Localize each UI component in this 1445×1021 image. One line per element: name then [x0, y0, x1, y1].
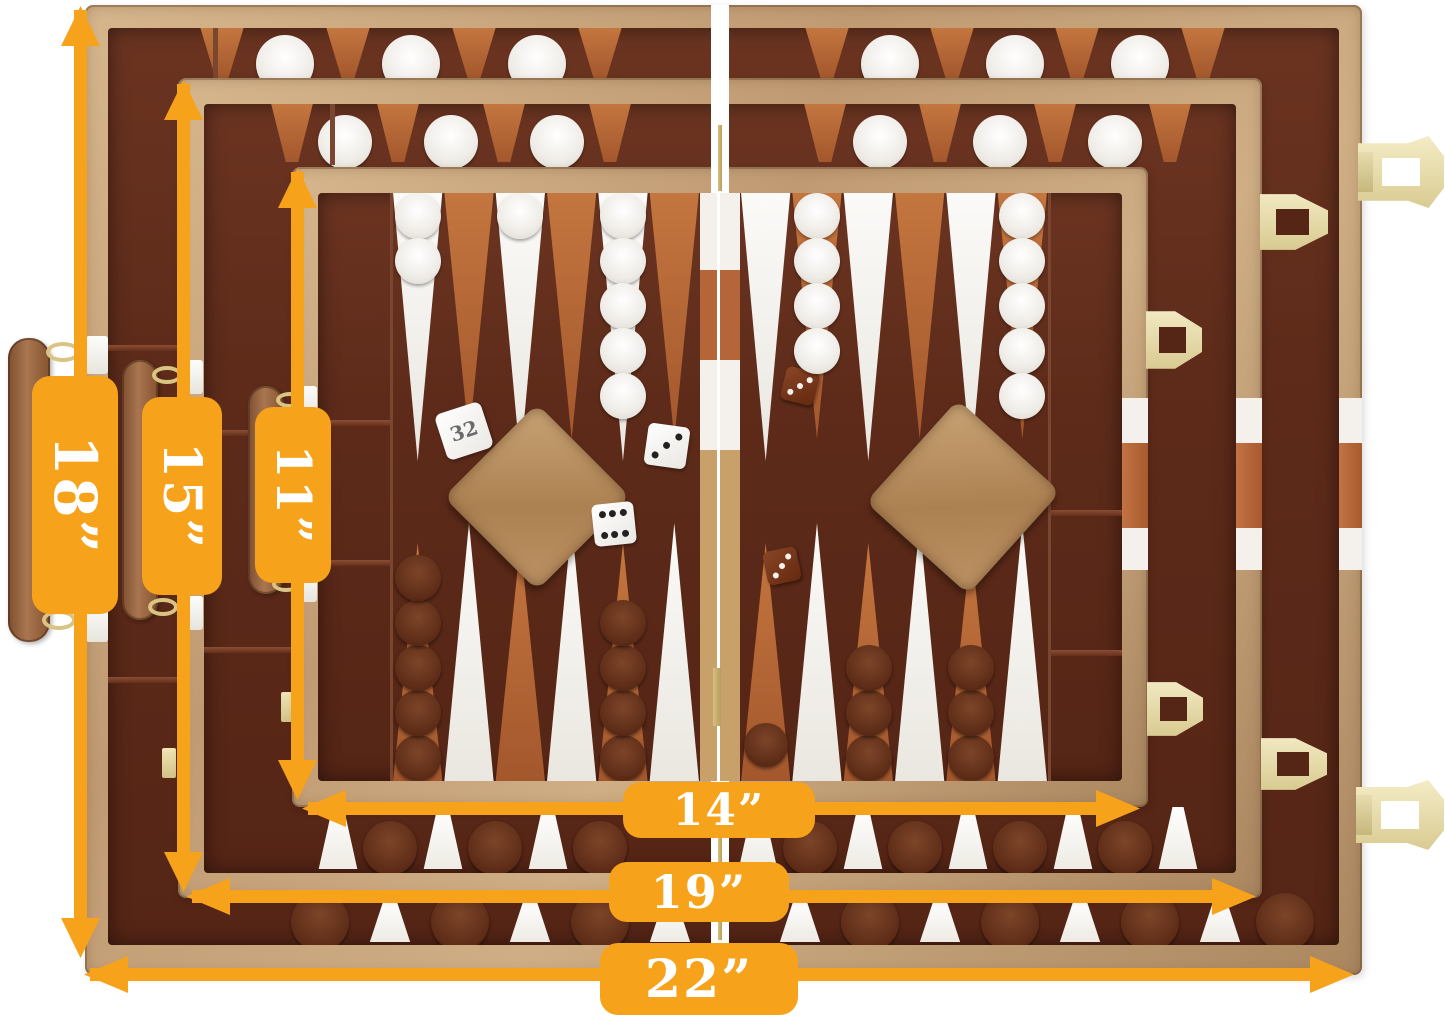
checker-white	[600, 238, 646, 284]
point-stub	[1050, 807, 1096, 869]
point-stub	[1050, 28, 1104, 78]
board-point	[443, 523, 494, 781]
strap-tab	[86, 336, 108, 374]
dimension-label-15-inch: 15”	[142, 397, 222, 595]
gold-latch-icon	[1261, 737, 1327, 791]
checker-brown	[395, 600, 441, 646]
point-stub	[266, 104, 318, 162]
dimension-label-18-inch: 18”	[32, 376, 118, 614]
tray-divider	[213, 28, 218, 78]
leather-strap	[1236, 443, 1262, 528]
checker-white	[794, 193, 840, 239]
board-point	[894, 193, 945, 439]
point-stub	[1144, 104, 1196, 162]
point-stub	[366, 898, 414, 942]
checker-white	[395, 193, 441, 239]
checker-white	[600, 193, 646, 239]
product-photo-nested-backgammon-cases: 32	[0, 0, 1445, 1021]
tray-shelf	[108, 345, 178, 351]
dimension-text: 22”	[645, 949, 753, 1010]
checker-white	[999, 238, 1045, 284]
point-stub	[573, 28, 627, 78]
checker-brown	[993, 821, 1047, 873]
checker-brown	[468, 821, 522, 873]
point-stub	[1056, 898, 1104, 942]
checker-brown	[846, 735, 892, 781]
dimension-label-22-inch: 22”	[600, 943, 798, 1015]
checker-brown	[1098, 821, 1152, 873]
backgammon-case-14-inch: 32	[292, 167, 1148, 807]
white-strap	[1339, 398, 1362, 443]
leather-strap	[1122, 443, 1148, 528]
checker-brown	[600, 690, 646, 736]
dimension-text: 18”	[41, 435, 109, 555]
checker-white	[395, 238, 441, 284]
board-point	[997, 523, 1048, 781]
checker-white	[999, 283, 1045, 329]
board-point	[791, 523, 842, 781]
doubling-cube-value: 32	[447, 415, 481, 446]
checker-brown	[600, 735, 646, 781]
gold-latch-icon	[1147, 681, 1203, 737]
checker-white	[973, 115, 1027, 169]
white-strap	[1236, 398, 1262, 443]
checker-white	[600, 373, 646, 419]
checker-brown	[395, 555, 441, 601]
board-point	[740, 193, 791, 461]
center-bar-segment	[700, 270, 740, 360]
dimension-label-14-inch: 14”	[623, 782, 815, 838]
case-14-interior: 32	[318, 193, 1122, 781]
white-strap	[1122, 398, 1148, 443]
checker-white	[794, 328, 840, 374]
die-brown	[762, 546, 802, 586]
tray-shelf	[1051, 650, 1122, 656]
point-stub	[800, 28, 854, 78]
checker-white	[530, 115, 584, 169]
tray-divider	[330, 104, 335, 165]
dimension-text: 15”	[152, 442, 213, 550]
point-stub	[506, 898, 554, 942]
checker-brown	[600, 600, 646, 646]
white-strap	[1339, 528, 1362, 570]
handle-ring-icon	[148, 598, 178, 616]
latch-keeper-icon	[162, 748, 176, 778]
checker-brown	[846, 645, 892, 691]
checker-brown	[600, 645, 646, 691]
checker-brown	[888, 821, 942, 873]
dimension-text: 19”	[651, 865, 747, 919]
checker-brown	[395, 645, 441, 691]
point-stub	[1155, 807, 1201, 869]
point-stub	[420, 807, 466, 869]
checker-white	[424, 115, 478, 169]
board-point	[546, 193, 597, 439]
leather-strap	[1339, 443, 1362, 528]
board-point	[649, 193, 700, 439]
checker-white	[794, 238, 840, 284]
tray-shelf	[204, 647, 292, 653]
checker-white	[600, 283, 646, 329]
dimension-label-11-inch: 11”	[255, 407, 331, 583]
checker-brown	[948, 645, 994, 691]
gold-latch-icon	[1260, 193, 1328, 251]
dimension-label-19-inch: 19”	[609, 862, 789, 922]
checker-white	[794, 283, 840, 329]
tray-shelf	[108, 677, 178, 683]
checker-white	[497, 193, 543, 239]
gold-lock-clasp-icon	[1356, 780, 1444, 850]
point-stub	[195, 28, 249, 78]
brass-hinge-icon	[718, 125, 722, 191]
checker-white	[999, 328, 1045, 374]
point-stub	[945, 807, 991, 869]
gold-lock-clasp-icon	[1358, 136, 1444, 208]
dimension-text: 14”	[673, 785, 766, 836]
board-point	[843, 193, 894, 461]
checker-brown	[948, 690, 994, 736]
point-stub	[925, 28, 979, 78]
dice-cup	[866, 400, 1061, 595]
point-stub	[799, 104, 851, 162]
center-bar-segment	[700, 360, 740, 450]
point-stub	[916, 898, 964, 942]
checker-brown	[395, 690, 441, 736]
center-bar-segment	[700, 450, 740, 781]
point-stub	[525, 807, 571, 869]
point-stub	[840, 807, 886, 869]
point-stub	[478, 104, 530, 162]
doubling-cube: 32	[434, 401, 494, 461]
checker-white	[600, 328, 646, 374]
point-stub	[321, 28, 375, 78]
checker-white	[1088, 115, 1142, 169]
checker-brown	[1256, 893, 1314, 945]
white-strap	[1236, 528, 1262, 570]
gold-latch-icon	[1146, 310, 1202, 370]
point-stub	[447, 28, 501, 78]
checker-brown	[846, 690, 892, 736]
white-strap	[1122, 528, 1148, 570]
point-stub	[584, 104, 636, 162]
tray-divider	[390, 193, 393, 781]
point-stub	[1176, 28, 1230, 78]
die-white	[643, 422, 690, 469]
tray-shelf	[1051, 510, 1122, 516]
checker-white	[999, 373, 1045, 419]
brass-hinge-icon	[713, 668, 721, 726]
board-point	[443, 193, 494, 439]
point-stub	[1029, 104, 1081, 162]
point-stub	[914, 104, 966, 162]
center-bar-segment	[700, 193, 740, 270]
checker-brown	[948, 735, 994, 781]
checker-white	[318, 115, 372, 169]
die-white	[591, 501, 637, 547]
checker-brown	[363, 821, 417, 873]
point-stub	[372, 104, 424, 162]
checker-white	[853, 115, 907, 169]
dimension-text: 11”	[265, 445, 321, 545]
checker-white	[999, 193, 1045, 239]
board-point	[649, 523, 700, 781]
checker-brown	[744, 723, 788, 767]
checker-brown	[395, 735, 441, 781]
